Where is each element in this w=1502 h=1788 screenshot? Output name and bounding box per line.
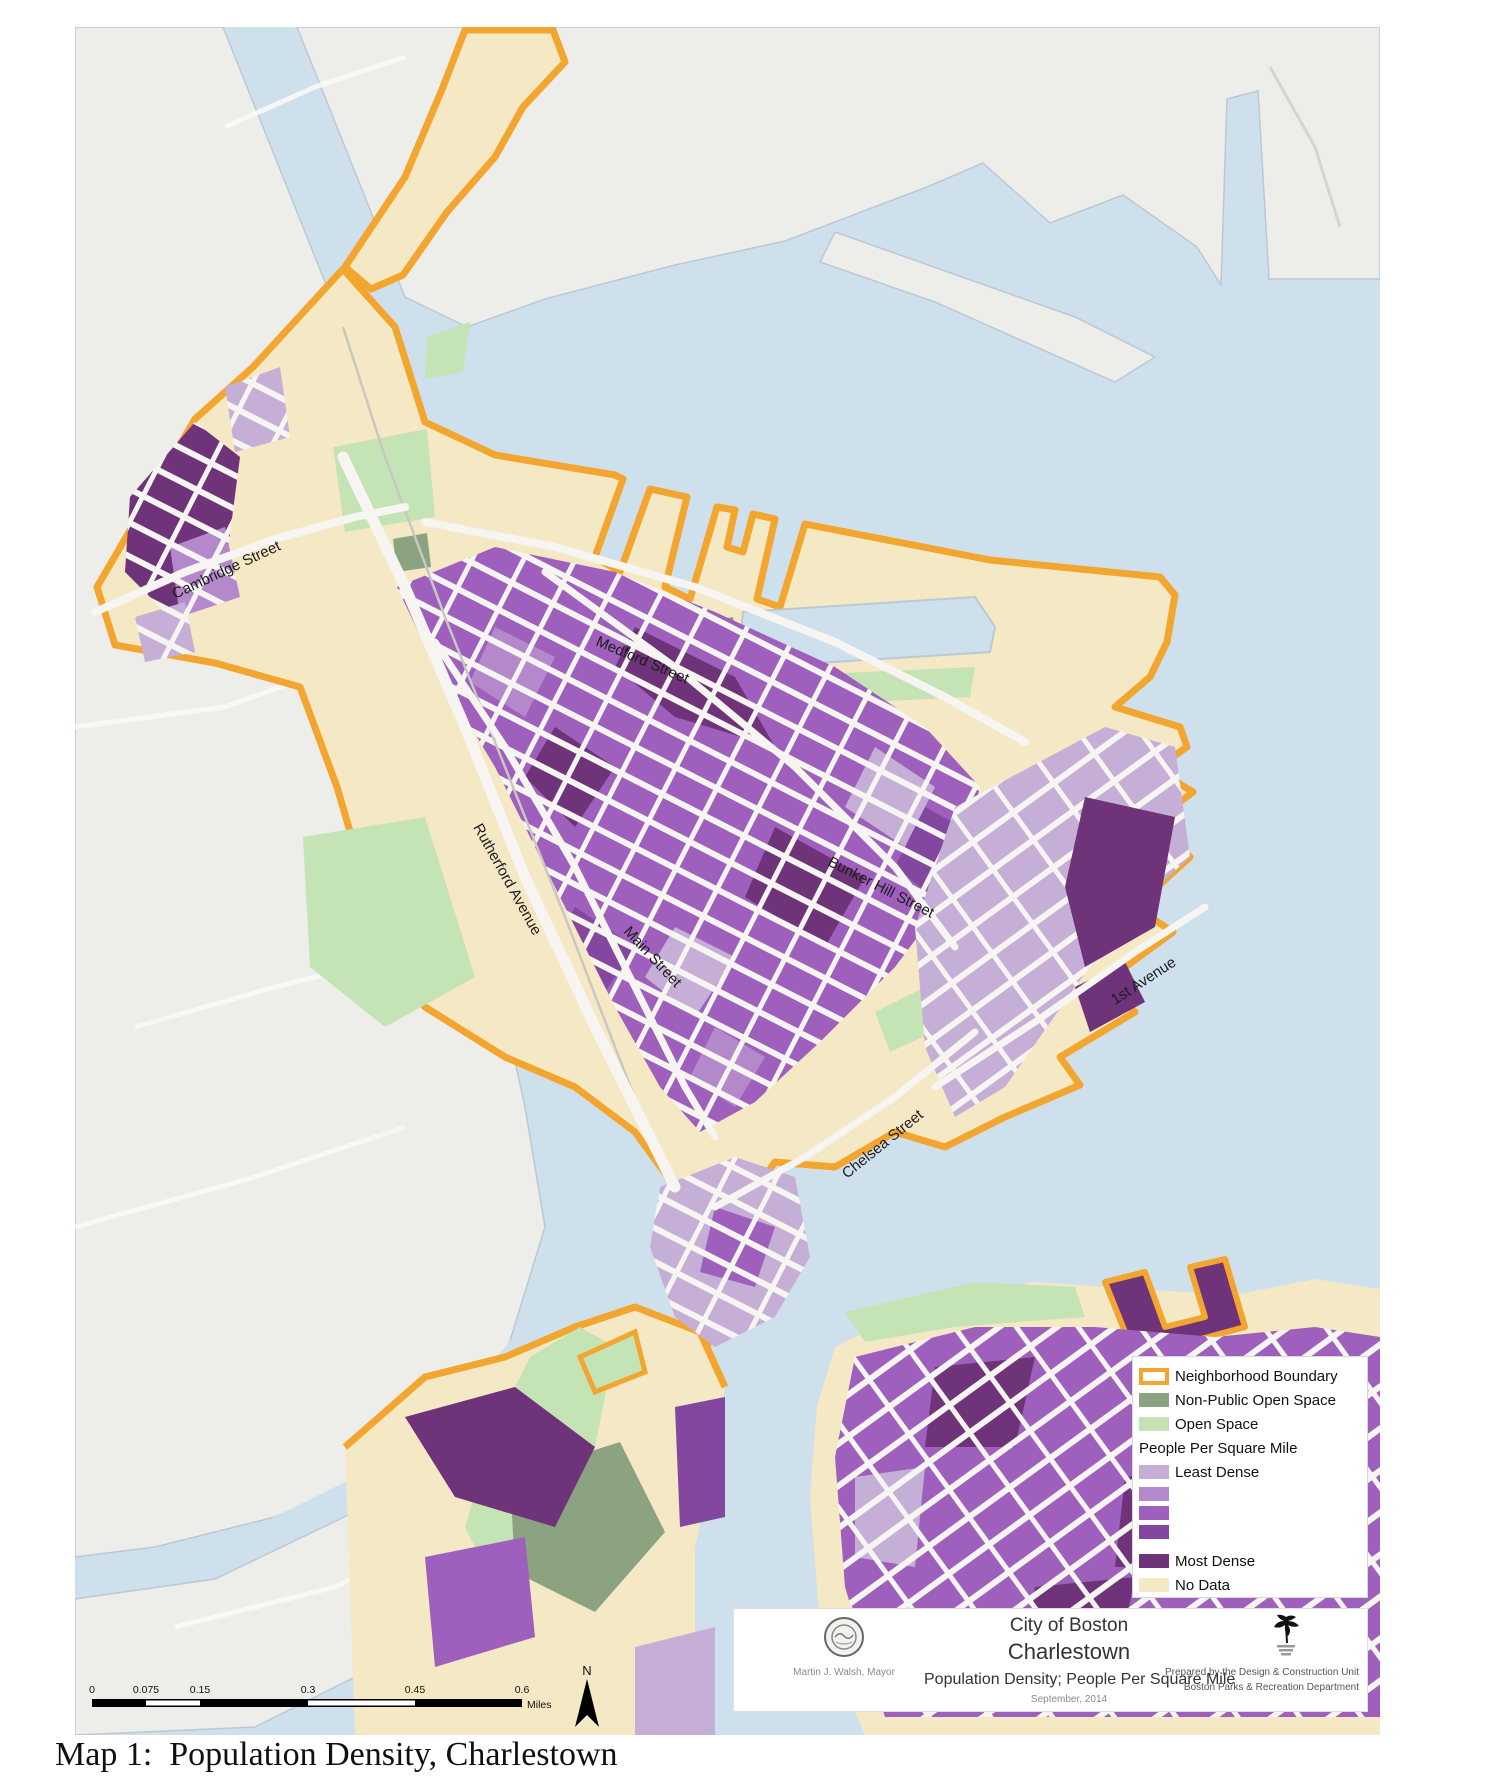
map-title-block: Martin J. Walsh, Mayor City of Boston Ch… (733, 1608, 1368, 1712)
non-public-open-space-swatch (1139, 1393, 1169, 1407)
map-caption: Map 1: Population Density, Charlestown (55, 1736, 618, 1774)
page: Cambridge Street Medford Street Rutherfo… (0, 0, 1502, 1788)
neighborhood-boundary-swatch (1139, 1368, 1169, 1385)
north-arrow-label: N (582, 1663, 591, 1678)
legend-item-neighborhood-boundary: Neighborhood Boundary (1139, 1364, 1359, 1388)
legend-label: Least Dense (1175, 1465, 1259, 1480)
legend-label: No Data (1175, 1578, 1230, 1593)
city-seal-icon (822, 1615, 866, 1659)
scale-tick-1: 0.075 (133, 1684, 159, 1696)
title-block-right: Prepared by the Design & Construction Un… (1059, 1613, 1359, 1694)
no-data-swatch (1139, 1578, 1169, 1592)
legend-label: Non-Public Open Space (1175, 1393, 1336, 1408)
scale-tick-4: 0.45 (405, 1684, 426, 1696)
legend-item-density-4 (1139, 1522, 1359, 1541)
scale-tick-0: 0 (89, 1684, 95, 1696)
legend-item-most-dense: Most Dense (1139, 1549, 1359, 1573)
density-swatch-least (1139, 1465, 1169, 1479)
legend-item-non-public-open-space: Non-Public Open Space (1139, 1388, 1359, 1412)
legend-label: Most Dense (1175, 1554, 1255, 1569)
mayor-credit: Martin J. Walsh, Mayor (764, 1667, 924, 1678)
open-space-swatch (1139, 1417, 1169, 1431)
scale-unit-label: Miles (527, 1699, 552, 1711)
legend-item-least-dense: Least Dense (1139, 1460, 1359, 1484)
legend-item-density-3 (1139, 1503, 1359, 1522)
title-block-left: Martin J. Walsh, Mayor (764, 1615, 924, 1678)
map-canvas: Cambridge Street Medford Street Rutherfo… (75, 27, 1380, 1735)
scale-tick-3: 0.3 (301, 1684, 316, 1696)
legend-item-density-2 (1139, 1484, 1359, 1503)
map-legend: Neighborhood Boundary Non-Public Open Sp… (1132, 1356, 1368, 1598)
prepared-by-line2: Boston Parks & Recreation Department (1059, 1681, 1359, 1694)
legend-label: Open Space (1175, 1417, 1258, 1432)
density-swatch-most (1139, 1554, 1169, 1568)
density-parcel (855, 1467, 925, 1567)
legend-density-header: People Per Square Mile (1139, 1436, 1359, 1460)
scale-bar-white-segment (146, 1701, 200, 1706)
scale-tick-2: 0.15 (190, 1684, 211, 1696)
legend-label: Neighborhood Boundary (1175, 1369, 1338, 1384)
legend-item-open-space: Open Space (1139, 1412, 1359, 1436)
legend-item-no-data: No Data (1139, 1573, 1359, 1597)
prepared-by-line1: Prepared by the Design & Construction Un… (1059, 1666, 1359, 1679)
title-date: September, 2014 (924, 1694, 1214, 1705)
scale-bar-white-segment (308, 1701, 415, 1706)
density-swatch-4 (1139, 1525, 1169, 1539)
density-swatch-2 (1139, 1487, 1169, 1501)
parks-department-logo-icon (1268, 1613, 1304, 1659)
scale-tick-5: 0.6 (515, 1684, 530, 1696)
density-swatch-3 (1139, 1506, 1169, 1520)
